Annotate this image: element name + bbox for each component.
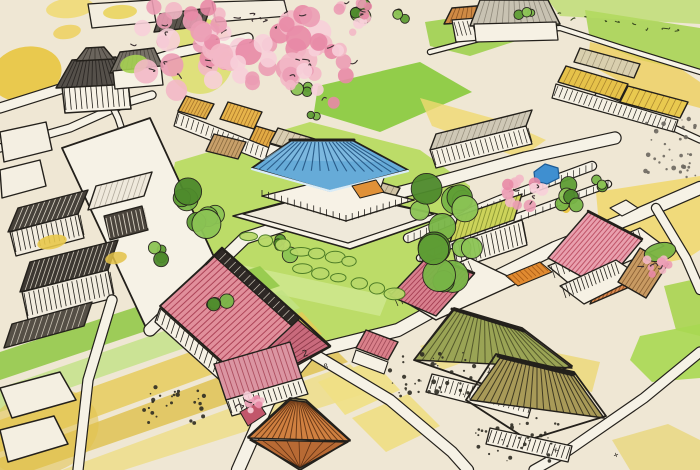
hall-top-gray-base	[474, 22, 558, 42]
illustrated-map-canvas: 282++	[0, 0, 700, 470]
illustrated-map: 282++	[0, 0, 700, 470]
